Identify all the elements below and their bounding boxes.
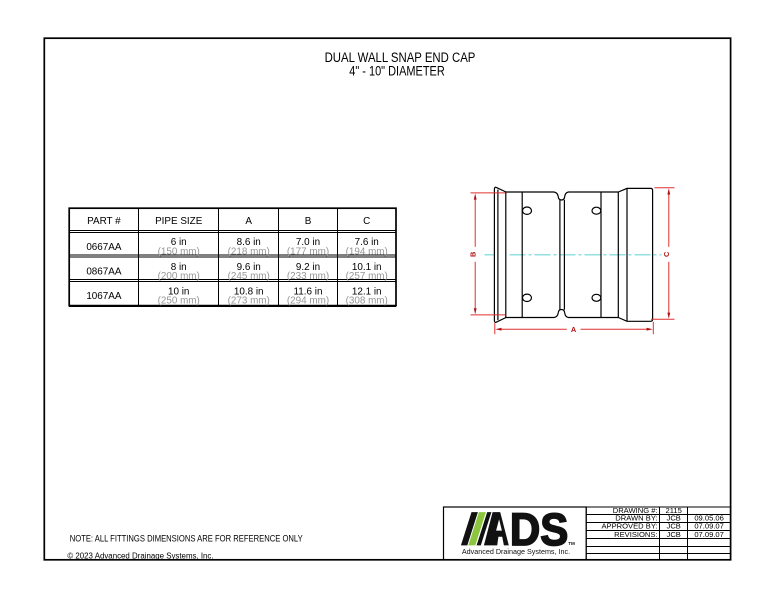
svg-text:07.09.07: 07.09.07 bbox=[694, 530, 724, 539]
svg-text:A: A bbox=[245, 216, 252, 227]
svg-text:(308 mm): (308 mm) bbox=[346, 296, 388, 307]
svg-text:(150 mm): (150 mm) bbox=[158, 246, 200, 257]
svg-text:4" - 10" DIAMETER: 4" - 10" DIAMETER bbox=[349, 63, 445, 78]
svg-text:1067AA: 1067AA bbox=[86, 291, 122, 302]
svg-text:(233 mm): (233 mm) bbox=[287, 271, 329, 282]
svg-text:Advanced Drainage Systems, Inc: Advanced Drainage Systems, Inc. bbox=[462, 549, 570, 556]
svg-text:© 2023 Advanced Drainage Syste: © 2023 Advanced Drainage Systems, Inc. bbox=[67, 551, 213, 560]
svg-text:B: B bbox=[305, 216, 312, 227]
svg-text:(200 mm): (200 mm) bbox=[158, 271, 200, 282]
svg-text:JCB: JCB bbox=[667, 530, 681, 539]
svg-text:A: A bbox=[571, 325, 577, 334]
svg-text:(177 mm): (177 mm) bbox=[287, 246, 329, 257]
svg-text:(257 mm): (257 mm) bbox=[346, 271, 388, 282]
svg-text:REVISIONS:: REVISIONS: bbox=[614, 530, 657, 539]
svg-text:B: B bbox=[469, 252, 478, 257]
svg-text:C: C bbox=[363, 216, 370, 227]
svg-text:(245 mm): (245 mm) bbox=[228, 271, 270, 282]
svg-text:(250 mm): (250 mm) bbox=[158, 296, 200, 307]
svg-text:DS: DS bbox=[510, 504, 568, 555]
svg-text:PART #: PART # bbox=[87, 216, 121, 227]
svg-text:0667AA: 0667AA bbox=[86, 242, 122, 253]
svg-text:0867AA: 0867AA bbox=[86, 266, 122, 277]
svg-text:(273 mm): (273 mm) bbox=[228, 296, 270, 307]
svg-text:PIPE SIZE: PIPE SIZE bbox=[155, 216, 203, 227]
svg-text:(294 mm): (294 mm) bbox=[287, 296, 329, 307]
svg-text:(194 mm): (194 mm) bbox=[346, 246, 388, 257]
svg-text:(218 mm): (218 mm) bbox=[228, 246, 270, 257]
svg-text:NOTE: ALL FITTINGS DIMENSIONS: NOTE: ALL FITTINGS DIMENSIONS ARE FOR RE… bbox=[70, 532, 304, 543]
svg-text:TM: TM bbox=[568, 541, 575, 546]
svg-text:C: C bbox=[662, 251, 671, 257]
